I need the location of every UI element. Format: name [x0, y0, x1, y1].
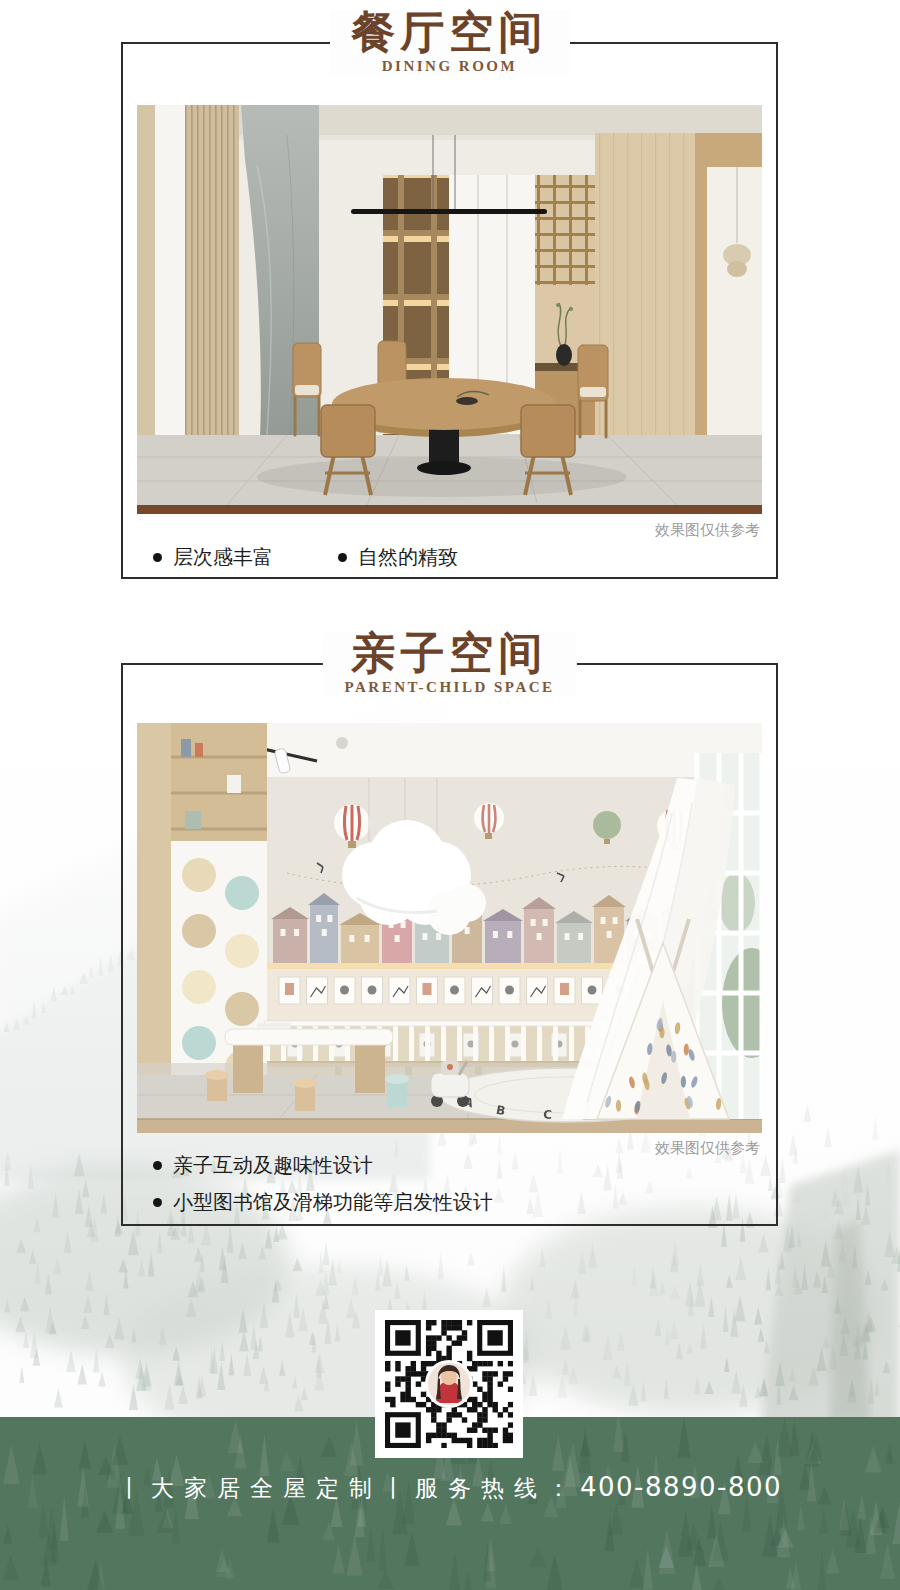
feature-bullet: 亲子互动及趣味性设计 [153, 1152, 373, 1179]
section-parent-child: 亲子空间 PARENT-CHILD SPACE [121, 663, 778, 1226]
wood-side-panel [137, 723, 171, 1119]
qr-avatar [425, 1360, 473, 1408]
bullet-dot-icon [153, 1161, 162, 1170]
accent-bar [137, 505, 762, 514]
dining-title: 餐厅空间 [352, 10, 548, 56]
bullet-label: 亲子互动及趣味性设计 [173, 1152, 373, 1179]
section-dining-room: 餐厅空间 DINING ROOM [121, 42, 778, 579]
render-disclaimer: 效果图仅供参考 [655, 1139, 760, 1158]
bullet-dot-icon [338, 553, 347, 562]
footer-text: 丨大家居全屋定制丨服务热线：400-8890-800 [0, 1472, 900, 1504]
dining-room-photo [137, 105, 762, 505]
qr-code[interactable] [375, 1310, 523, 1458]
bullet-label: 小型图书馆及滑梯功能等启发性设计 [173, 1189, 493, 1216]
kids-room-photo: ABCDE [137, 723, 762, 1133]
feature-bullet: 层次感丰富 [153, 544, 273, 571]
bullet-dot-icon [153, 553, 162, 562]
footer-service-label: 丨大家居全屋定制丨服务热线： [118, 1475, 580, 1501]
render-disclaimer: 效果图仅供参考 [655, 521, 760, 540]
toy-shelf [171, 723, 267, 841]
section-title-block: 餐厅空间 DINING ROOM [330, 10, 570, 75]
feature-bullet: 小型图书馆及滑梯功能等启发性设计 [153, 1189, 493, 1216]
bullet-label: 自然的精致 [358, 544, 458, 571]
feature-bullet: 自然的精致 [338, 544, 458, 571]
dining-subtitle: DINING ROOM [352, 58, 548, 75]
section-title-block: 亲子空间 PARENT-CHILD SPACE [322, 631, 576, 696]
svg-text:C: C [543, 1107, 553, 1121]
bullet-label: 层次感丰富 [173, 544, 273, 571]
kids-title: 亲子空间 [344, 631, 554, 677]
bullet-dot-icon [153, 1198, 162, 1207]
hotline-number[interactable]: 400-8890-800 [580, 1472, 782, 1502]
kids-subtitle: PARENT-CHILD SPACE [344, 679, 554, 696]
